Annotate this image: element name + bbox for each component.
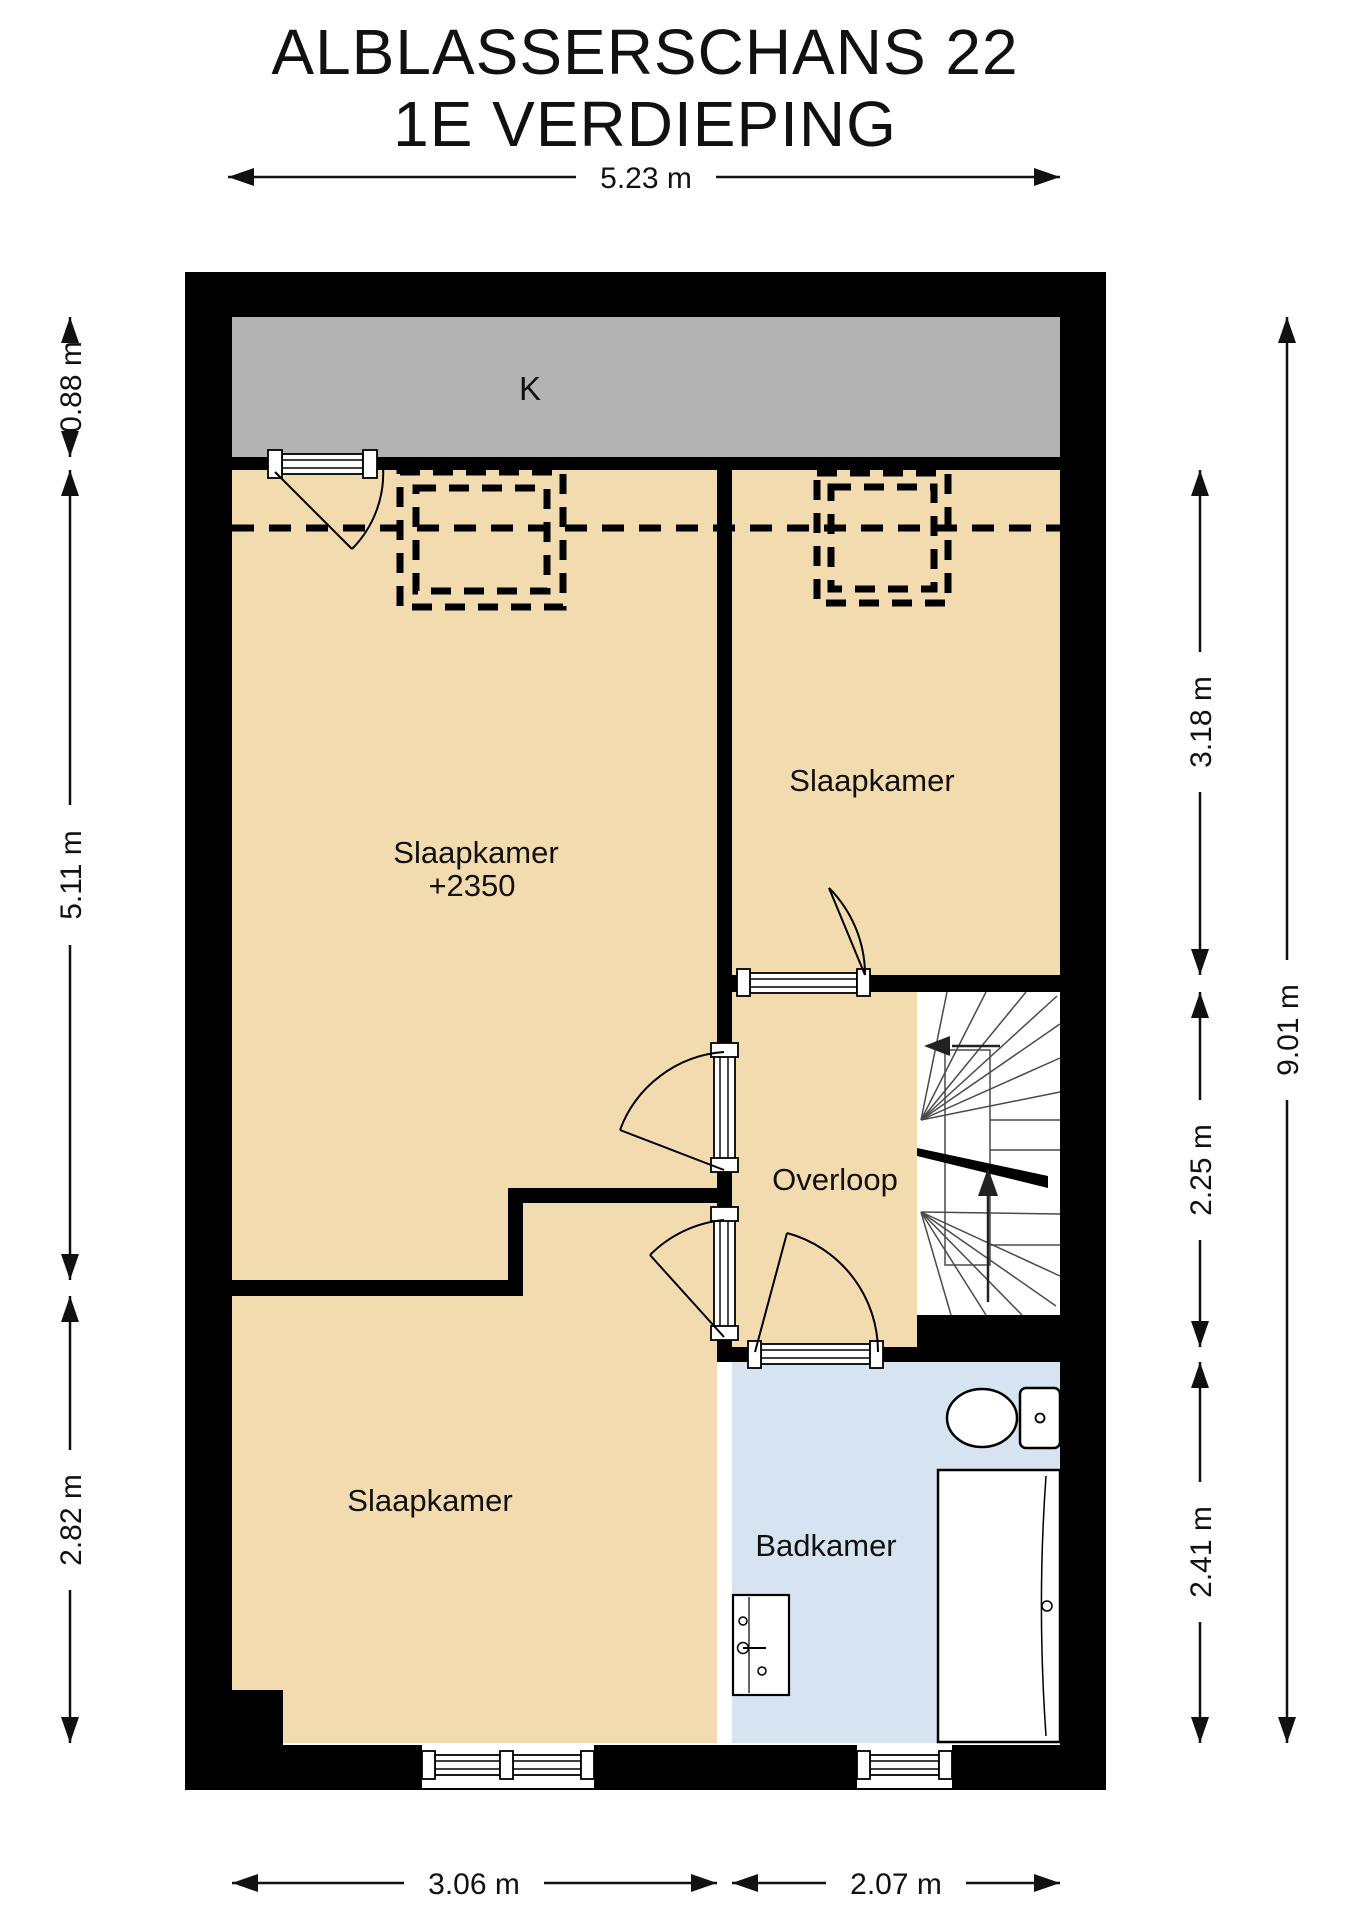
bedroom-large-label: Slaapkamer [393, 835, 558, 870]
dimension-bottom-right-label: 2.07 m [850, 1868, 942, 1901]
dimension-right-top-label: 3.18 m [1185, 676, 1218, 768]
window-bathroom [857, 1745, 952, 1788]
floorplan-page: ALBLASSERSCHANS 22 1E VERDIEPING [0, 0, 1358, 1920]
room-k-roof [232, 317, 1060, 457]
bathroom-label: Badkamer [755, 1528, 896, 1563]
bedroom-topright-label: Slaapkamer [789, 763, 954, 798]
bedroom-large-ceiling-label: +2350 [428, 868, 515, 903]
toilet [947, 1388, 1060, 1448]
window-bedroom-bottom [422, 1745, 594, 1788]
bathtub [938, 1470, 1060, 1742]
room-k-label: K [519, 370, 541, 407]
room-bedroom-topright [732, 470, 1060, 975]
landing-label: Overloop [772, 1162, 898, 1197]
floorplan-svg: ALBLASSERSCHANS 22 1E VERDIEPING [0, 0, 1358, 1920]
dimension-right-middle-label: 2.25 m [1185, 1124, 1218, 1216]
page-title-line1: ALBLASSERSCHANS 22 [271, 16, 1018, 88]
sink [733, 1595, 789, 1695]
dimension-right-bottom-label: 2.41 m [1185, 1506, 1218, 1598]
dimension-right-total-label: 9.01 m [1272, 984, 1305, 1076]
dimension-bottom-left-label: 3.06 m [428, 1868, 520, 1901]
dimension-left-top-label: 0.88 m [55, 341, 88, 433]
dimension-top-width-label: 5.23 m [600, 162, 692, 195]
dimension-left-bottom-label: 2.82 m [55, 1474, 88, 1566]
dimension-left-middle-label: 5.11 m [55, 830, 88, 920]
page-title-line2: 1E VERDIEPING [393, 88, 897, 160]
bedroom-bottom-label: Slaapkamer [347, 1483, 512, 1518]
